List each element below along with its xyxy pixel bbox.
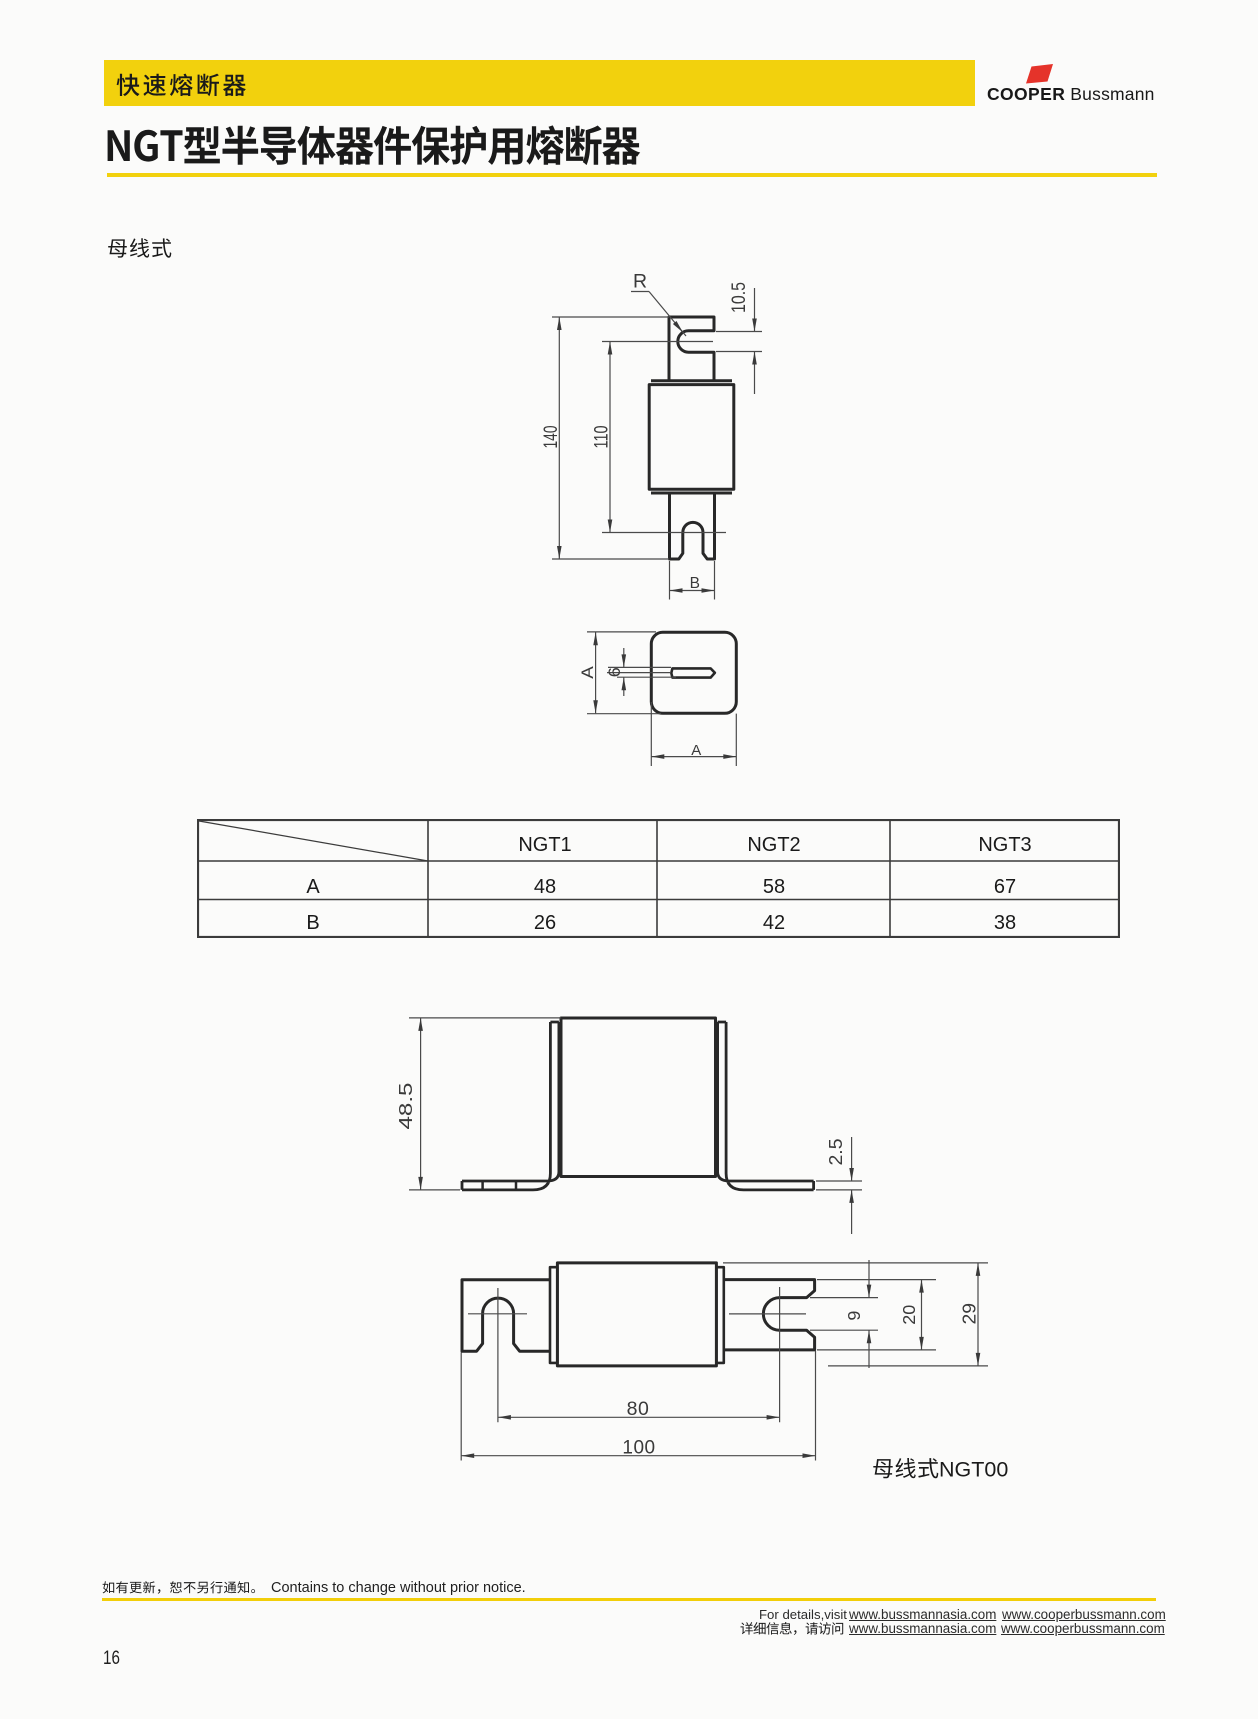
svg-text:2.5: 2.5 [825,1139,846,1166]
svg-text:9: 9 [844,1311,864,1321]
svg-text:A: A [579,666,597,679]
svg-text:67: 67 [994,876,1016,898]
svg-text:A: A [306,876,320,898]
svg-text:10.5: 10.5 [729,282,750,313]
svg-text:48.5: 48.5 [395,1083,416,1130]
svg-text:48: 48 [534,876,556,898]
svg-text:NGT1: NGT1 [518,834,571,856]
svg-text:100: 100 [622,1438,655,1459]
svg-text:140: 140 [541,426,562,449]
svg-text:6: 6 [605,667,624,677]
svg-text:26: 26 [534,912,556,934]
svg-text:NGT2: NGT2 [747,834,800,856]
svg-text:B: B [306,912,319,934]
svg-text:20: 20 [899,1304,919,1324]
svg-text:NGT3: NGT3 [978,834,1031,856]
svg-text:80: 80 [627,1398,650,1420]
svg-text:R: R [633,271,647,293]
svg-text:NGT00: NGT00 [939,1458,1008,1482]
svg-text:A: A [691,742,702,759]
svg-text:B: B [690,575,701,592]
svg-text:58: 58 [763,876,785,898]
svg-text:38: 38 [994,912,1016,934]
svg-text:29: 29 [960,1303,980,1325]
svg-text:110: 110 [592,426,613,449]
svg-text:42: 42 [763,912,785,934]
